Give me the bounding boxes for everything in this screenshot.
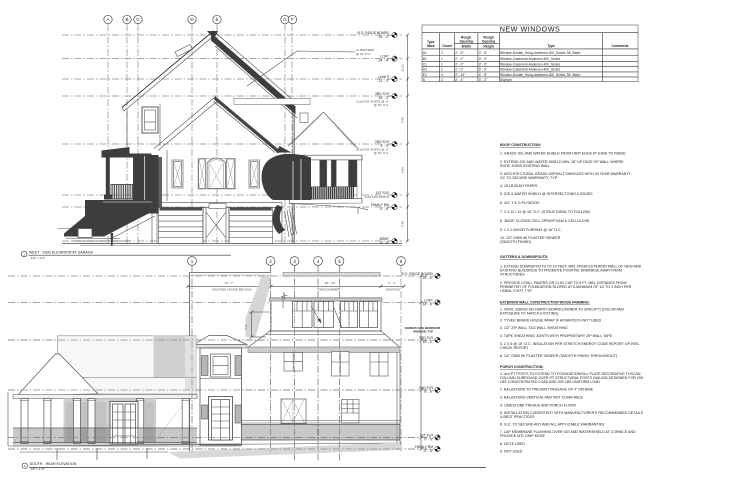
svg-text:3' - 1": 3' - 1" — [388, 281, 396, 285]
svg-text:STRUCTURES: STRUCTURES — [500, 273, 525, 277]
svg-text:9.83: 9.83 — [401, 167, 405, 173]
svg-text:4: 4 — [441, 73, 443, 77]
svg-text:2' - 6": 2' - 6" — [455, 51, 464, 55]
svg-text:LINEAL FOOT, TYP.: LINEAL FOOT, TYP. — [500, 289, 532, 293]
svg-text:18' - 10": 18' - 10" — [325, 281, 336, 285]
svg-text:3: 3 — [293, 259, 296, 264]
svg-text:ROOF CONSTRUCTION:: ROOF CONSTRUCTION: — [500, 143, 541, 147]
svg-text:ROOF JOINS EXISTING WALL: ROOF JOINS EXISTING WALL — [500, 164, 550, 168]
svg-text:@ 16" O.C.: @ 16" O.C. — [374, 103, 389, 107]
svg-text:Window-Casement-Andersen-400_S: Window-Casement-Andersen-400_Series — [500, 57, 560, 61]
svg-text:EXPOSURE TO MATCH EXISTING): EXPOSURE TO MATCH EXISTING) — [500, 312, 558, 316]
svg-text:PROVIDE MTL DRIP EDGE: PROVIDE MTL DRIP EDGE — [500, 434, 546, 438]
svg-text:8. 'BASF' CLOSED CELL SPRAYFOA: 8. 'BASF' CLOSED CELL SPRAYFOAM & CELLUL… — [500, 219, 590, 223]
svg-text:E1: E1 — [423, 73, 427, 77]
svg-text:14' - 7": 14' - 7" — [224, 281, 233, 285]
svg-text:D1: D1 — [423, 68, 427, 72]
svg-text:2' - 0": 2' - 0" — [455, 57, 464, 61]
svg-text:3' - 0": 3' - 0" — [479, 57, 488, 61]
svg-text:Window-Casement-Andersen-400_S: Window-Casement-Andersen-400_Series — [500, 62, 560, 66]
svg-text:3. BALUSTERS VERTICAL AND NOT: 3. BALUSTERS VERTICAL AND NOT CLIMB-ABLE — [500, 396, 584, 400]
svg-text:NEW DORMER: NEW DORMER — [318, 288, 340, 292]
svg-text:4. LIMESTONE TREADS AND PORCH: 4. LIMESTONE TREADS AND PORCH FLOOR — [500, 404, 576, 408]
svg-text:2. TYVEK BRAND HOUSE WRAP IF A: 2. TYVEK BRAND HOUSE WRAP IF ADVANTECH N… — [500, 319, 602, 323]
svg-text:29' - 0": 29' - 0" — [422, 276, 433, 280]
svg-text:EXISTING: EXISTING — [386, 288, 401, 292]
svg-text:-0' - 8": -0' - 8" — [379, 207, 390, 211]
svg-text:4: 4 — [317, 259, 320, 264]
svg-text:4. TAPE SHEATHING JOINTS WITH: 4. TAPE SHEATHING JOINTS WITH PROPRIETAR… — [500, 334, 613, 338]
svg-text:9. 1 X 2 WOOD FURRING @ 16" O.: 9. 1 X 2 WOOD FURRING @ 16" O.C. — [500, 228, 562, 232]
svg-text:E: E — [215, 17, 218, 22]
svg-text:SOUTH - REAR ELEVATION: SOUTH - REAR ELEVATION — [30, 462, 77, 466]
svg-text:5' - 0": 5' - 0" — [479, 68, 488, 72]
svg-text:PORCH CONSTRUCTION:: PORCH CONSTRUCTION: — [500, 365, 544, 369]
svg-text:Window-Double_Hung-Andersen-40: Window-Double_Hung-Andersen-400_Series-T… — [500, 51, 581, 55]
svg-text:Type: Type — [547, 44, 555, 48]
svg-text:EXISTING HOUSE BEYOND: EXISTING HOUSE BEYOND — [212, 288, 252, 292]
svg-text:@ 16" O.C.: @ 16" O.C. — [356, 52, 371, 56]
svg-text:-0' - 8": -0' - 8" — [423, 449, 434, 453]
svg-text:1: 1 — [441, 62, 443, 66]
svg-text:7'-6": 7'-6" — [244, 324, 248, 330]
svg-text:WINDOW, TYP: WINDOW, TYP — [413, 330, 433, 334]
svg-text:EXTERIOR WALL CONSTRUCTION WO: EXTERIOR WALL CONSTRUCTION WOOD FRAMING: — [500, 301, 590, 305]
svg-text:A1: A1 — [423, 51, 427, 55]
svg-text:1/4" = 1'-0": 1/4" = 1'-0" — [31, 467, 45, 471]
svg-text:2: 2 — [441, 51, 443, 55]
svg-text:24' - 9": 24' - 9" — [422, 302, 433, 306]
svg-text:-8' - 6": -8' - 6" — [379, 241, 390, 245]
svg-text:0' - 0": 0' - 0" — [424, 437, 433, 441]
svg-text:5. ICE & WATER SHIELD @ INTERS: 5. ICE & WATER SHIELD @ INTERSECTIONS & … — [500, 192, 593, 196]
svg-text:3' - 5": 3' - 5" — [479, 51, 488, 55]
svg-text:4' - 5": 4' - 5" — [479, 73, 488, 77]
svg-text:5.00: 5.00 — [401, 117, 405, 123]
svg-text:1: 1 — [191, 259, 194, 264]
svg-text:6: 6 — [400, 259, 403, 264]
svg-text:5: 5 — [338, 259, 341, 264]
svg-text:4. 15 LB BLDG PAPER: 4. 15 LB BLDG PAPER — [500, 184, 537, 188]
svg-text:8. NOTE USED: 8. NOTE USED — [500, 442, 525, 446]
svg-text:@ 16" O.C.: @ 16" O.C. — [374, 151, 389, 155]
svg-text:WEST - SIDE ELEVATION AT GARAG: WEST - SIDE ELEVATION AT GARAGE — [29, 250, 94, 254]
svg-text:B: B — [125, 17, 128, 22]
svg-text:19' - 0": 19' - 0" — [422, 340, 433, 344]
svg-text:9' - 9": 9' - 9" — [424, 390, 433, 394]
svg-text:2' - 0": 2' - 0" — [455, 62, 464, 66]
svg-text:1: 1 — [441, 68, 443, 72]
svg-text:1: 1 — [24, 464, 26, 468]
svg-text:C1: C1 — [423, 62, 427, 66]
svg-text:1: 1 — [441, 57, 443, 61]
svg-text:9. NOT USED: 9. NOT USED — [500, 449, 523, 453]
svg-text:3' - 2": 3' - 2" — [479, 78, 488, 82]
svg-text:2x10 FLR JOISTS: 2x10 FLR JOISTS — [365, 195, 389, 199]
svg-text:(SMOOTH FINISH): (SMOOTH FINISH) — [500, 240, 531, 244]
svg-text:Count: Count — [442, 44, 452, 48]
svg-text:CHECK REPORT: CHECK REPORT — [500, 346, 529, 350]
svg-text:LBS CONCENTRATED LOAD AND 200: LBS CONCENTRATED LOAD AND 200 LBS UNIFOR… — [500, 380, 600, 384]
svg-text:NEW WINDOWS: NEW WINDOWS — [500, 25, 561, 34]
svg-text:2: 2 — [23, 252, 25, 256]
svg-text:2: 2 — [441, 78, 443, 82]
svg-text:Opening: Opening — [460, 39, 473, 43]
svg-text:2' - 10": 2' - 10" — [455, 73, 466, 77]
svg-text:G: G — [283, 17, 287, 22]
svg-text:21' - 3": 21' - 3" — [378, 79, 389, 83]
svg-text:Height: Height — [483, 45, 494, 49]
svg-text:6. 1/2" GWB W/ PLASTER VENEER: 6. 1/2" GWB W/ PLASTER VENEER (SMOOTH FI… — [500, 354, 617, 358]
svg-text:Skylight: Skylight — [500, 78, 511, 82]
svg-text:Width: Width — [462, 45, 471, 49]
svg-text:5.38: 5.38 — [401, 221, 405, 227]
svg-text:6. G.C. TO SECURE ANY AND ALL: 6. G.C. TO SECURE ANY AND ALL APPLICABLE… — [500, 423, 605, 427]
svg-text:29' - 0": 29' - 0" — [378, 35, 389, 39]
svg-text:24' - 9": 24' - 9" — [378, 58, 389, 62]
svg-text:7. 2 X 10 / 12 @ 16" O.C. (STR: 7. 2 X 10 / 12 @ 16" O.C. (STRUCTURAL TO… — [500, 210, 590, 214]
svg-text:2' - 0": 2' - 0" — [455, 68, 464, 72]
svg-text:6. 3/4" T & G PLYWOOD: 6. 3/4" T & G PLYWOOD — [500, 201, 540, 205]
svg-text:2: 2 — [269, 259, 272, 264]
svg-text:Opening: Opening — [482, 39, 495, 43]
svg-text:Comments: Comments — [611, 44, 628, 48]
svg-text:GUTTERS & DOWNSPOUTS:: GUTTERS & DOWNSPOUTS: — [500, 255, 548, 259]
svg-text:1. GRACE ICE AND WATER SHIELD: 1. GRACE ICE AND WATER SHIELD FROM DRIP … — [500, 152, 626, 156]
svg-text:Mark: Mark — [427, 44, 435, 48]
svg-text:Window-Double_Hung-Andersen-40: Window-Double_Hung-Andersen-400_Series-T… — [500, 73, 581, 77]
svg-text:3. 1/2" ZIP WALL T&G WALL SHEA: 3. 1/2" ZIP WALL T&G WALL SHEATHING — [500, 326, 568, 330]
svg-text:11.83: 11.83 — [401, 64, 405, 72]
svg-text:& BEST PRACTICES: & BEST PRACTICES — [500, 415, 535, 419]
svg-text:2' - 4": 2' - 4" — [455, 78, 464, 82]
svg-text:2. BALUSTERS TO PREVENT PASSAG: 2. BALUSTERS TO PREVENT PASSAGE OF 4" SP… — [500, 388, 594, 392]
svg-text:B1: B1 — [423, 57, 427, 61]
svg-text:GC TO SECURE WARRANTY, TYP.: GC TO SECURE WARRANTY, TYP. — [500, 176, 558, 180]
svg-text:Window-Casement-Andersen-400_S: Window-Casement-Andersen-400_Series — [500, 68, 560, 72]
svg-text:1/4" = 1'-0": 1/4" = 1'-0" — [31, 256, 45, 260]
svg-text:3' - 0": 3' - 0" — [479, 62, 488, 66]
svg-text:F: F — [291, 17, 294, 22]
